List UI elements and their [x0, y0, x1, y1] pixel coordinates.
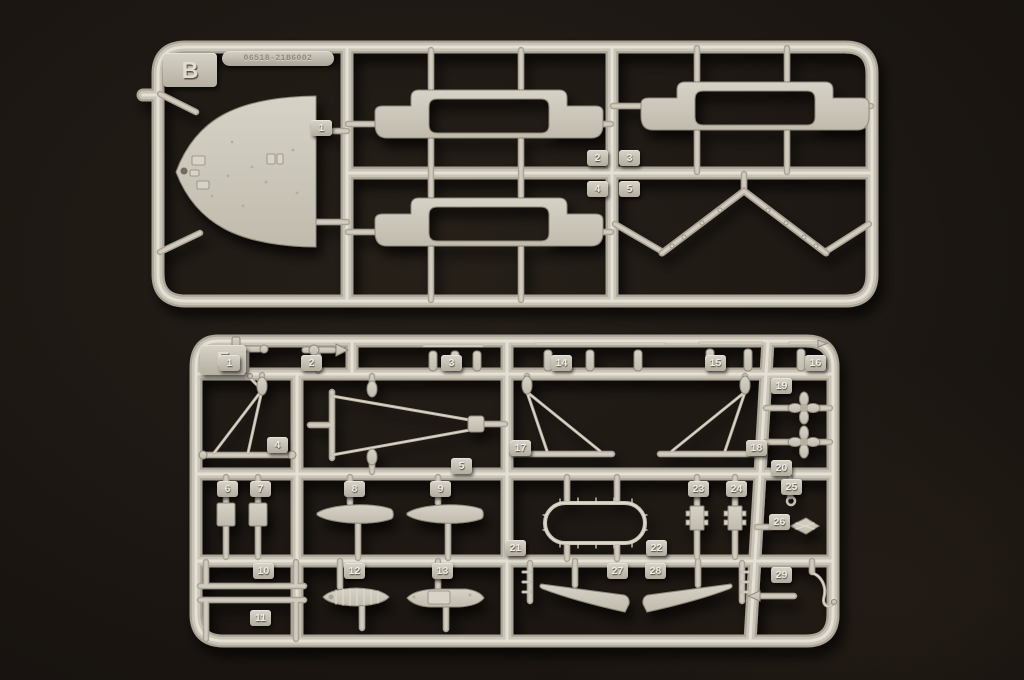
- mold-stamp: 06518-21B6002: [222, 51, 334, 66]
- sprue-b: [143, 47, 872, 301]
- tag-f-23: 23: [688, 481, 709, 497]
- plate-part-6: [217, 503, 235, 526]
- tag-b-5: 5: [619, 181, 640, 197]
- chevron-yardarm-part: [662, 191, 826, 253]
- bracket-part-24: [724, 506, 746, 530]
- tag-f-2: 2: [301, 355, 322, 371]
- tag-f-11: 11: [250, 610, 271, 626]
- tag-f-5: 5: [451, 458, 472, 474]
- tag-b-1: 1: [311, 120, 332, 136]
- half-hull-part-8: [317, 505, 393, 523]
- bracket-part-23: [686, 506, 708, 530]
- tag-f-13: 13: [432, 563, 453, 579]
- tag-f-7: 7: [250, 481, 271, 497]
- oval-railing-part-21-22: [543, 498, 647, 548]
- sprue-photo: B F 06518-21B6002 1 2 3 4 5 1 2 3 4 5 6 …: [0, 0, 1024, 680]
- bow-deck-part: [176, 96, 316, 247]
- tag-b-2: 2: [587, 150, 608, 166]
- skeg-part-27: [540, 584, 629, 612]
- half-hull-part-9: [407, 505, 483, 523]
- tag-f-8: 8: [344, 481, 365, 497]
- finned-part-26: [790, 518, 819, 534]
- tag-f-18: 18: [746, 440, 767, 456]
- tag-f-21: 21: [505, 540, 526, 556]
- tag-f-16: 16: [805, 355, 826, 371]
- tag-f-20: 20: [771, 460, 792, 476]
- tag-b-4: 4: [587, 181, 608, 197]
- propeller-part-19: [788, 392, 820, 424]
- bridge-platform-part-top-right: [641, 82, 869, 130]
- bridge-platform-part-bottom-center: [375, 198, 603, 246]
- tag-f-25: 25: [781, 479, 802, 495]
- eyelet-part-25: [787, 497, 795, 505]
- propeller-part-20: [788, 426, 820, 458]
- tag-f-4: 4: [267, 437, 288, 453]
- tag-f-19: 19: [771, 378, 792, 394]
- tag-f-26: 26: [769, 514, 790, 530]
- lifeboat-part-12: [323, 588, 389, 606]
- tag-f-1: 1: [219, 355, 240, 371]
- derrick-part-17: [522, 376, 532, 394]
- tag-f-22: 22: [646, 540, 667, 556]
- tag-f-24: 24: [726, 481, 747, 497]
- derrick-part-18: [740, 376, 750, 394]
- sprue-letter-tab-b: B: [163, 53, 217, 87]
- tag-f-6: 6: [217, 481, 238, 497]
- sprue-graphics: [0, 0, 1024, 680]
- tag-f-9: 9: [430, 481, 451, 497]
- tag-f-14: 14: [551, 355, 572, 371]
- tag-f-12: 12: [344, 563, 365, 579]
- tag-f-3: 3: [441, 355, 462, 371]
- tag-f-15: 15: [705, 355, 726, 371]
- bridge-platform-part-top-center: [375, 90, 603, 138]
- tag-f-17: 17: [510, 440, 531, 456]
- tag-f-27: 27: [607, 563, 628, 579]
- tag-f-29: 29: [771, 567, 792, 583]
- tag-f-10: 10: [253, 563, 274, 579]
- v-mast-part-5: [367, 381, 484, 465]
- plate-part-7: [249, 503, 267, 526]
- tag-b-3: 3: [619, 150, 640, 166]
- skeg-part-28: [643, 584, 732, 612]
- launch-part-13: [407, 589, 484, 607]
- tag-f-28: 28: [645, 563, 666, 579]
